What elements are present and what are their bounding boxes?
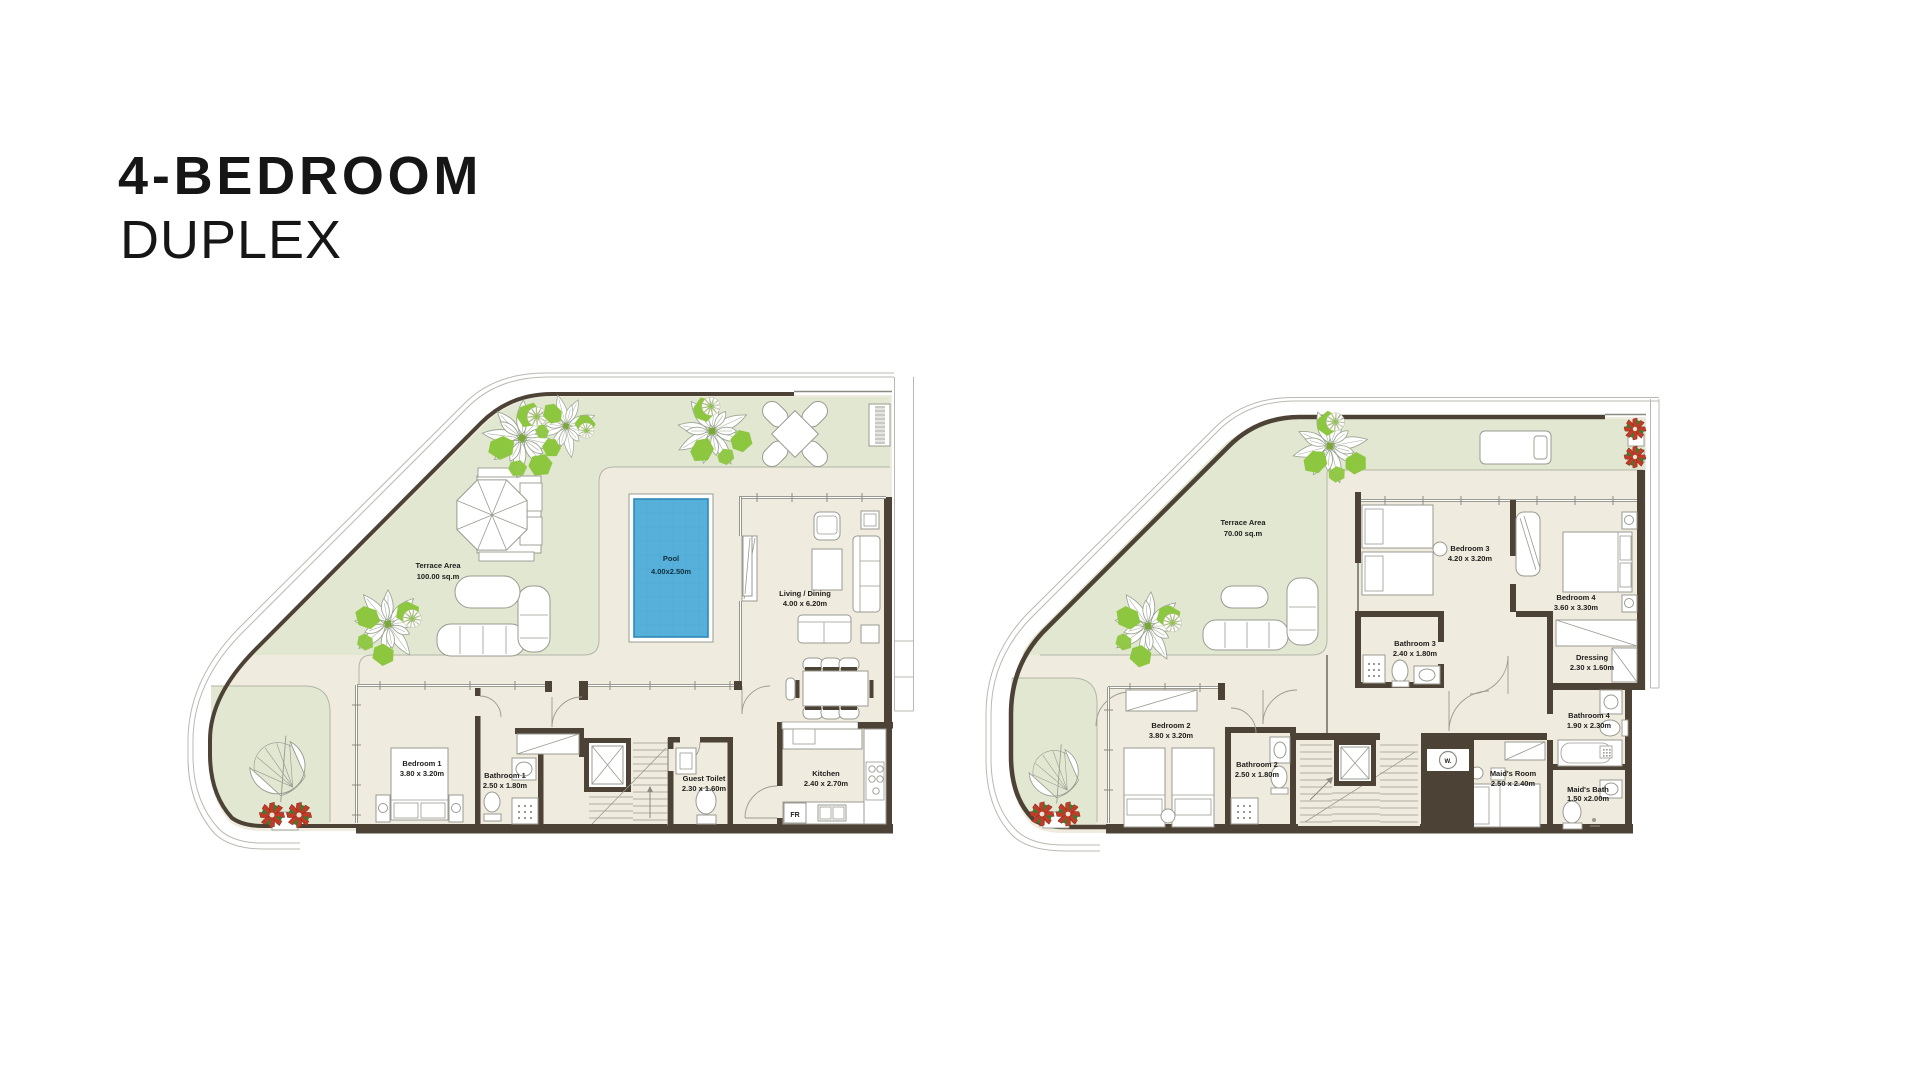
svg-text:Pool: Pool	[663, 554, 679, 563]
svg-text:DUPLEX: DUPLEX	[120, 210, 342, 270]
svg-text:2.50 x 2.40m: 2.50 x 2.40m	[1491, 779, 1536, 788]
svg-text:Dressing: Dressing	[1576, 653, 1609, 662]
svg-text:2.40 x 2.70m: 2.40 x 2.70m	[804, 779, 849, 788]
svg-text:Bathroom 4: Bathroom 4	[1568, 711, 1611, 720]
svg-text:Bedroom 3: Bedroom 3	[1450, 544, 1489, 553]
svg-text:Terrace Area: Terrace Area	[1220, 518, 1266, 527]
svg-text:3.60 x 3.30m: 3.60 x 3.30m	[1554, 603, 1599, 612]
svg-text:Living / Dining: Living / Dining	[779, 589, 831, 598]
svg-text:1.50 x2.00m: 1.50 x2.00m	[1567, 794, 1609, 803]
svg-text:2.50 x 1.80m: 2.50 x 1.80m	[1235, 770, 1280, 779]
svg-text:4-BEDROOM: 4-BEDROOM	[118, 146, 482, 206]
svg-text:Maid's Room: Maid's Room	[1490, 769, 1537, 778]
svg-text:4.00x2.50m: 4.00x2.50m	[651, 567, 691, 576]
svg-text:Terrace Area: Terrace Area	[415, 561, 461, 570]
svg-text:2.40 x 1.80m: 2.40 x 1.80m	[1393, 649, 1438, 658]
svg-text:Bedroom 4: Bedroom 4	[1556, 593, 1596, 602]
svg-text:Bathroom 2: Bathroom 2	[1236, 760, 1278, 769]
svg-text:Bedroom 2: Bedroom 2	[1151, 721, 1190, 730]
svg-text:Bathroom 3: Bathroom 3	[1394, 639, 1436, 648]
svg-text:4.20 x 3.20m: 4.20 x 3.20m	[1448, 554, 1493, 563]
svg-text:Bathroom 1: Bathroom 1	[484, 771, 526, 780]
svg-text:W.: W.	[1445, 759, 1452, 765]
svg-text:70.00 sq.m: 70.00 sq.m	[1224, 529, 1263, 538]
svg-text:2.30 x 1.60m: 2.30 x 1.60m	[1570, 663, 1615, 672]
svg-text:2.30 x 1.60m: 2.30 x 1.60m	[682, 784, 727, 793]
svg-text:1.90 x 2.30m: 1.90 x 2.30m	[1567, 721, 1612, 730]
svg-text:4.00 x 6.20m: 4.00 x 6.20m	[783, 599, 828, 608]
svg-text:2.50 x 1.80m: 2.50 x 1.80m	[483, 781, 528, 790]
svg-text:100.00 sq.m: 100.00 sq.m	[417, 572, 460, 581]
svg-text:Bedroom 1: Bedroom 1	[402, 759, 441, 768]
svg-text:FR: FR	[790, 812, 799, 819]
svg-text:3.80 x 3.20m: 3.80 x 3.20m	[1149, 731, 1194, 740]
svg-text:Kitchen: Kitchen	[812, 769, 840, 778]
svg-text:Guest Toilet: Guest Toilet	[683, 774, 726, 783]
svg-text:Maid's Bath: Maid's Bath	[1567, 785, 1609, 794]
svg-text:3.80 x 3.20m: 3.80 x 3.20m	[400, 769, 445, 778]
